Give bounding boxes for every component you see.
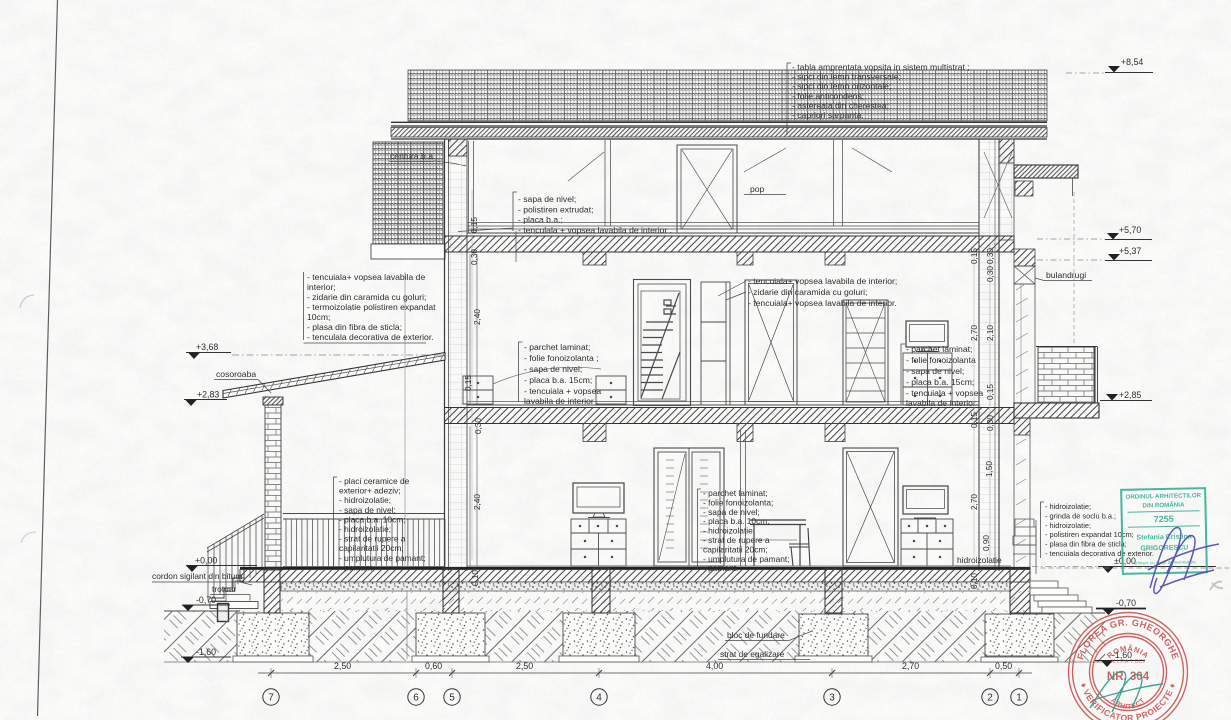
svg-text:-1,60: -1,60: [196, 647, 216, 657]
svg-text:- sapa de nivel;: - sapa de nivel;: [518, 194, 576, 204]
svg-text:lavabila de interior .: lavabila de interior .: [524, 396, 599, 406]
svg-text:+5,70: +5,70: [1119, 225, 1141, 235]
svg-text:0,30: 0,30: [986, 248, 995, 264]
svg-text:bloc de fundare: bloc de fundare: [727, 630, 785, 640]
svg-text:+2,85: +2,85: [1119, 390, 1141, 400]
svg-text:- placa b.a. 15cm;: - placa b.a. 15cm;: [524, 375, 592, 385]
svg-text:1: 1: [1016, 693, 1022, 704]
svg-text:- folie fonoizolanta: - folie fonoizolanta: [906, 355, 976, 365]
svg-text:- sipci din lemn orizontale;: - sipci din lemn orizontale;: [792, 81, 891, 91]
svg-text:- hidroizolatie;: - hidroizolatie;: [339, 495, 391, 505]
svg-text:- folie anticondens;: - folie anticondens;: [792, 91, 864, 101]
svg-text:- parchet laminat;: - parchet laminat;: [906, 344, 972, 354]
svg-text:- zidarie din caramida cu golu: - zidarie din caramida cu goluri;: [307, 292, 426, 302]
svg-text:interior;: interior;: [307, 282, 336, 292]
svg-text:trotuar: trotuar: [212, 584, 236, 594]
svg-text:- polistiren extrudat;: - polistiren extrudat;: [518, 204, 593, 214]
svg-text:0,15: 0,15: [986, 384, 995, 400]
svg-text:pop: pop: [750, 184, 765, 194]
svg-text:2,40: 2,40: [473, 309, 482, 325]
svg-text:M.L.P.A.T. DCJ: M.L.P.A.T. DCJ: [1111, 659, 1145, 665]
svg-text:0,60: 0,60: [425, 661, 442, 671]
svg-text:-0,70: -0,70: [196, 595, 216, 605]
svg-text:- sipci din lemn transversale;: - sipci din lemn transversale;: [792, 72, 901, 82]
svg-text:2,70: 2,70: [970, 325, 979, 341]
svg-text:7255: 7255: [1154, 514, 1174, 524]
svg-text:4: 4: [596, 693, 602, 704]
svg-text:bulandrugi: bulandrugi: [1046, 270, 1086, 280]
svg-text:hidroizolatie: hidroizolatie: [957, 555, 1002, 565]
svg-text:- polistiren expandat 10cm;: - polistiren expandat 10cm;: [1045, 530, 1134, 539]
svg-text:0,30: 0,30: [986, 415, 995, 431]
svg-text:1,50: 1,50: [985, 461, 994, 477]
svg-text:- placa b.a. 15cm;: - placa b.a. 15cm;: [906, 377, 974, 387]
svg-text:2,70: 2,70: [902, 661, 919, 671]
svg-text:- placa b.a. 10cm;: - placa b.a. 10cm;: [339, 514, 406, 524]
svg-text:- plasa din fibra de sticla;: - plasa din fibra de sticla;: [1045, 540, 1127, 549]
svg-text:0,15: 0,15: [470, 217, 479, 233]
svg-text:- umplutura de pamant;: - umplutura de pamant;: [339, 553, 426, 563]
svg-text:-0,70: -0,70: [1116, 598, 1136, 608]
svg-text:- sapa de nivel;: - sapa de nivel;: [524, 364, 582, 374]
svg-text:0,50: 0,50: [995, 661, 1012, 671]
svg-text:0,15: 0,15: [970, 248, 979, 264]
svg-text:lavabila de interior: lavabila de interior: [906, 398, 976, 408]
svg-text:0,10: 0,10: [471, 570, 480, 586]
svg-text:- tencuiala+ vopsea lavabila d: - tencuiala+ vopsea lavabila de interior…: [748, 298, 897, 308]
svg-text:cordon sigilant din bitum: cordon sigilant din bitum: [152, 571, 242, 581]
svg-text:- tabla amprentata vopsita in: - tabla amprentata vopsita in sistem mul…: [792, 62, 970, 72]
svg-text:- tencuiala + vopsea: - tencuiala + vopsea: [906, 388, 983, 398]
svg-text:6: 6: [413, 693, 419, 704]
svg-text:strat de egalizare: strat de egalizare: [720, 649, 785, 659]
svg-text:0,15: 0,15: [464, 375, 473, 391]
svg-text:10cm;: 10cm;: [307, 312, 330, 322]
svg-text:centura b.a.: centura b.a.: [390, 151, 435, 161]
svg-text:- tencuiala decorativa de exte: - tencuiala decorativa de exterior.: [1045, 549, 1154, 558]
svg-text:2,50: 2,50: [334, 661, 351, 671]
svg-text:- astereala din cherestea;: - astereala din cherestea;: [792, 100, 889, 110]
svg-text:- capriori sarpanta.: - capriori sarpanta.: [792, 110, 864, 120]
svg-text:+3,68: +3,68: [196, 342, 218, 352]
svg-text:2: 2: [987, 693, 993, 704]
svg-text:- grinda de soclu b.a.;: - grinda de soclu b.a.;: [1045, 511, 1116, 520]
svg-text:2,10: 2,10: [986, 325, 995, 341]
svg-text:0,30: 0,30: [986, 266, 995, 282]
svg-text:+8,54: +8,54: [1121, 57, 1143, 67]
svg-text:3: 3: [829, 693, 835, 704]
svg-text:0,30: 0,30: [470, 249, 479, 265]
svg-text:- termoizolatie polistiren exp: - termoizolatie polistiren expandat: [307, 302, 436, 312]
svg-text:+0,00: +0,00: [195, 556, 217, 566]
svg-text:- tenculala decorativa de exte: - tenculala decorativa de exterior.: [307, 332, 434, 342]
svg-text:- placi ceramice de: - placi ceramice de: [339, 476, 410, 486]
svg-text:- tencuiala + vopsea: - tencuiala + vopsea: [524, 386, 601, 396]
svg-text:- pamant.: - pamant.: [703, 563, 738, 573]
svg-text:- tencuiala+ vopsea lavabila d: - tencuiala+ vopsea lavabila de interior…: [748, 276, 897, 286]
svg-text:- hidroizolatie;: - hidroizolatie;: [339, 524, 391, 534]
svg-text:- folie fonoizolanta ;: - folie fonoizolanta ;: [524, 353, 599, 363]
svg-text:0,90: 0,90: [982, 535, 991, 551]
svg-text:+5,37: +5,37: [1119, 246, 1141, 256]
svg-text:- pamant.: - pamant.: [339, 562, 374, 572]
svg-text:0,30: 0,30: [474, 418, 483, 434]
svg-text:5: 5: [449, 693, 455, 704]
svg-text:7: 7: [268, 693, 274, 704]
svg-text:0,15: 0,15: [970, 412, 979, 428]
svg-text:4,00: 4,00: [706, 661, 723, 671]
svg-text:- strat de rupere a: - strat de rupere a: [339, 534, 406, 544]
svg-text:- sapa de nivel;: - sapa de nivel;: [339, 505, 396, 515]
svg-text:+2,83: +2,83: [197, 390, 219, 400]
svg-text:- hidroizolatie;: - hidroizolatie;: [1045, 502, 1091, 511]
svg-text:- plasa din fibra de sticla;: - plasa din fibra de sticla;: [307, 322, 402, 332]
svg-text:2,40: 2,40: [473, 494, 482, 510]
svg-text:2,70: 2,70: [970, 494, 979, 510]
svg-text:- tencuiala+ vopsea lavabila d: - tencuiala+ vopsea lavabila de: [307, 272, 425, 282]
svg-text:- tenculala + vopsea lavabila: - tenculala + vopsea lavabila de interio…: [518, 225, 672, 235]
svg-text:- sapa de nivel;: - sapa de nivel;: [906, 366, 964, 376]
svg-text:DIN ROMÂNIA: DIN ROMÂNIA: [1142, 502, 1185, 510]
svg-text:- placa b.a.;: - placa b.a.;: [518, 215, 563, 225]
svg-text:2,50: 2,50: [516, 661, 533, 671]
svg-text:0,10: 0,10: [970, 573, 979, 589]
svg-text:- parchet laminat;: - parchet laminat;: [524, 342, 590, 352]
svg-text:cosoroaba: cosoroaba: [216, 369, 256, 379]
svg-text:- hidroizolatie;: - hidroizolatie;: [1045, 521, 1091, 530]
svg-text:capilaritatii 20cm;: capilaritatii 20cm;: [339, 543, 404, 553]
svg-text:exterior+ adeziv;: exterior+ adeziv;: [339, 486, 401, 496]
svg-text:- zidarie din caramida cu golu: - zidarie din caramida cu goluri;: [748, 287, 867, 297]
